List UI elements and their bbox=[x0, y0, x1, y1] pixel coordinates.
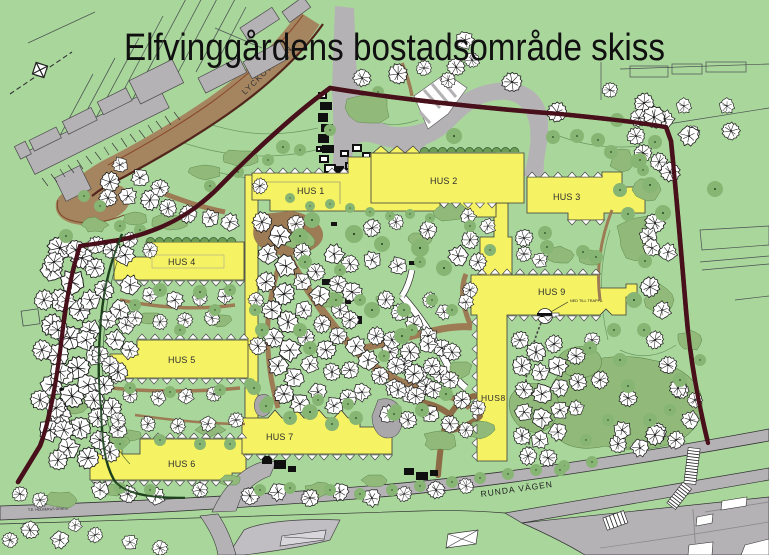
svg-text:HUS 3: HUS 3 bbox=[553, 192, 581, 202]
svg-text:Elfvinggårdens bostadsområde s: Elfvinggårdens bostadsområde skiss bbox=[124, 27, 665, 69]
svg-text:HUS 9: HUS 9 bbox=[538, 287, 566, 297]
svg-text:NED TILL TRAPPA: NED TILL TRAPPA bbox=[570, 299, 603, 303]
svg-text:HUS 6: HUS 6 bbox=[168, 459, 196, 469]
svg-text:HUS8: HUS8 bbox=[481, 393, 506, 403]
svg-text:HUS 7: HUS 7 bbox=[266, 432, 294, 442]
svg-text:HUS 2: HUS 2 bbox=[430, 176, 458, 186]
svg-text:HUS 1: HUS 1 bbox=[297, 186, 325, 196]
svg-text:HUS 5: HUS 5 bbox=[168, 355, 196, 365]
svg-text:HUS 4: HUS 4 bbox=[168, 257, 196, 267]
